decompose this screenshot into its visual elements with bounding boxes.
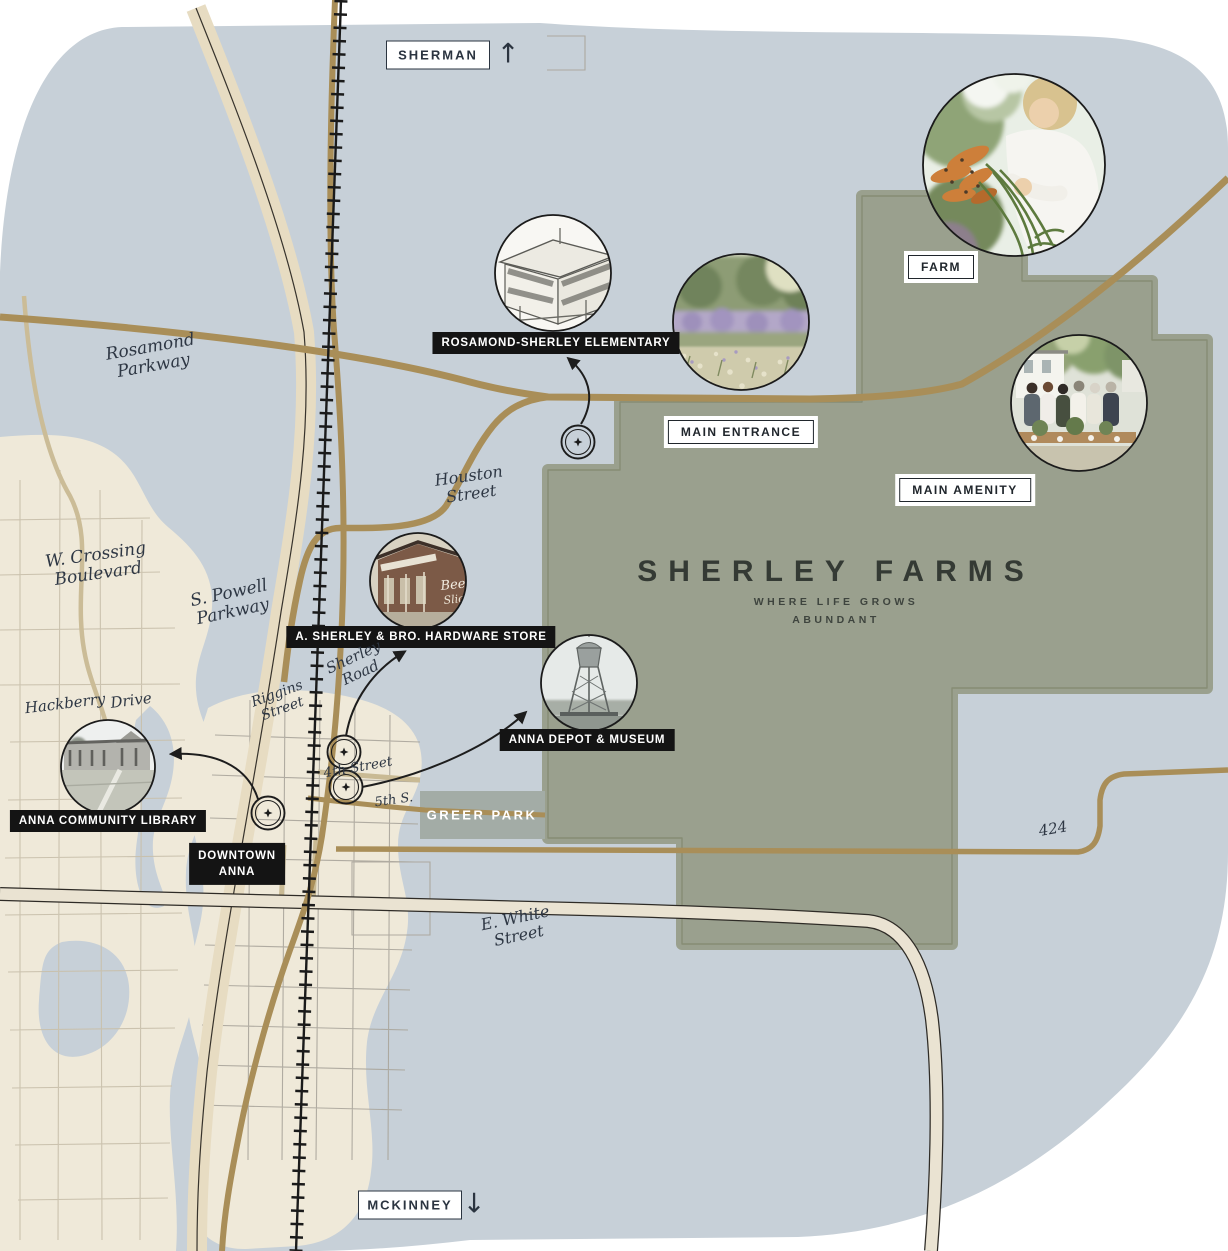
- sherley-farms-site-map: Beech Sliced: [0, 0, 1228, 1251]
- elementary-label: ROSAMOND-SHERLEY ELEMENTARY: [432, 332, 679, 354]
- hardware-store-label: A. SHERLEY & BRO. HARDWARE STORE: [286, 626, 555, 648]
- greer-park-label: GREER PARK: [427, 808, 538, 823]
- south-arrow-icon: ↓: [463, 1189, 486, 1220]
- property-title: SHERLEY FARMS: [637, 555, 1035, 589]
- main-amenity-label: MAIN AMENITY: [895, 474, 1035, 506]
- farm-label: FARM: [904, 251, 978, 283]
- property-tagline-line2: ABUNDANT: [792, 614, 880, 626]
- downtown-anna-label: DOWNTOWN ANNA: [189, 843, 285, 885]
- main-entrance-label: MAIN ENTRANCE: [664, 416, 818, 448]
- south-city-label: MCKINNEY: [358, 1191, 462, 1220]
- property-tagline-line1: WHERE LIFE GROWS: [754, 596, 919, 608]
- library-label: ANNA COMMUNITY LIBRARY: [10, 810, 206, 832]
- depot-museum-label: ANNA DEPOT & MUSEUM: [500, 729, 675, 751]
- map-canvas: Beech Sliced: [0, 0, 1228, 1251]
- north-city-label: SHERMAN: [386, 41, 490, 70]
- north-arrow-icon: ↑: [497, 39, 520, 70]
